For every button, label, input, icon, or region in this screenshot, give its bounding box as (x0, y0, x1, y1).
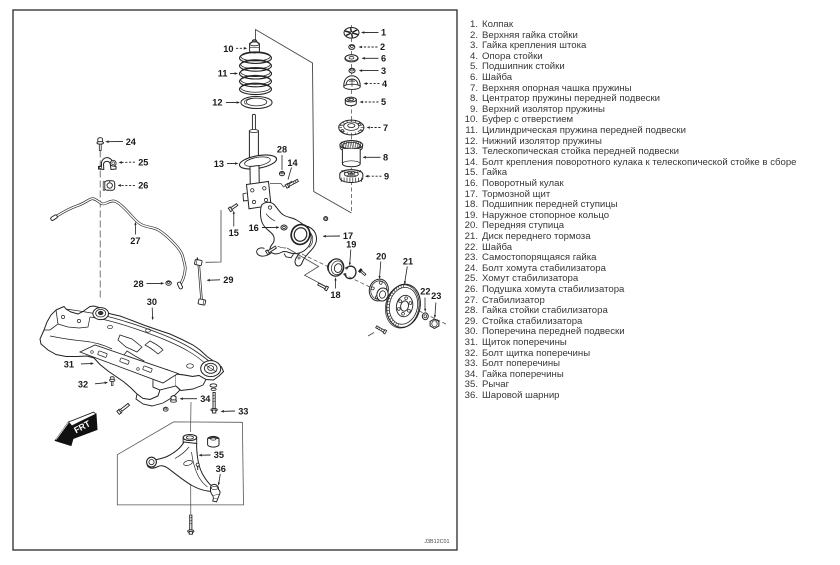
svg-text:31: 31 (64, 359, 74, 369)
svg-text:24: 24 (126, 137, 137, 147)
svg-text:2: 2 (380, 42, 385, 52)
svg-text:12: 12 (212, 98, 222, 108)
svg-text:22: 22 (420, 287, 430, 297)
svg-text:13: 13 (214, 159, 224, 169)
svg-text:4: 4 (382, 79, 388, 89)
svg-text:32: 32 (78, 379, 88, 389)
svg-text:23: 23 (431, 291, 441, 301)
svg-text:1: 1 (381, 28, 386, 38)
svg-text:11: 11 (218, 69, 228, 79)
svg-text:14: 14 (287, 158, 298, 168)
svg-text:20: 20 (376, 252, 386, 262)
svg-text:27: 27 (130, 236, 140, 246)
svg-text:36: 36 (216, 464, 226, 474)
svg-text:26: 26 (138, 181, 148, 191)
svg-text:21: 21 (403, 257, 413, 267)
svg-text:25: 25 (138, 157, 148, 167)
svg-text:33: 33 (238, 407, 248, 417)
svg-text:9: 9 (384, 171, 389, 181)
svg-text:15: 15 (229, 228, 239, 238)
svg-text:18: 18 (330, 290, 340, 300)
svg-text:5: 5 (381, 97, 386, 107)
svg-text:J3B12C01: J3B12C01 (424, 539, 449, 545)
svg-text:6: 6 (381, 53, 386, 63)
svg-text:19: 19 (346, 240, 356, 250)
svg-text:28: 28 (277, 145, 287, 155)
svg-text:8: 8 (383, 153, 388, 163)
svg-text:10: 10 (223, 44, 233, 54)
svg-text:29: 29 (223, 275, 233, 285)
svg-text:7: 7 (383, 123, 388, 133)
svg-text:30: 30 (147, 297, 157, 307)
svg-text:35: 35 (214, 450, 224, 460)
svg-text:16: 16 (249, 223, 259, 233)
svg-text:34: 34 (200, 394, 211, 404)
svg-text:3: 3 (381, 66, 386, 76)
svg-text:28: 28 (133, 279, 143, 289)
